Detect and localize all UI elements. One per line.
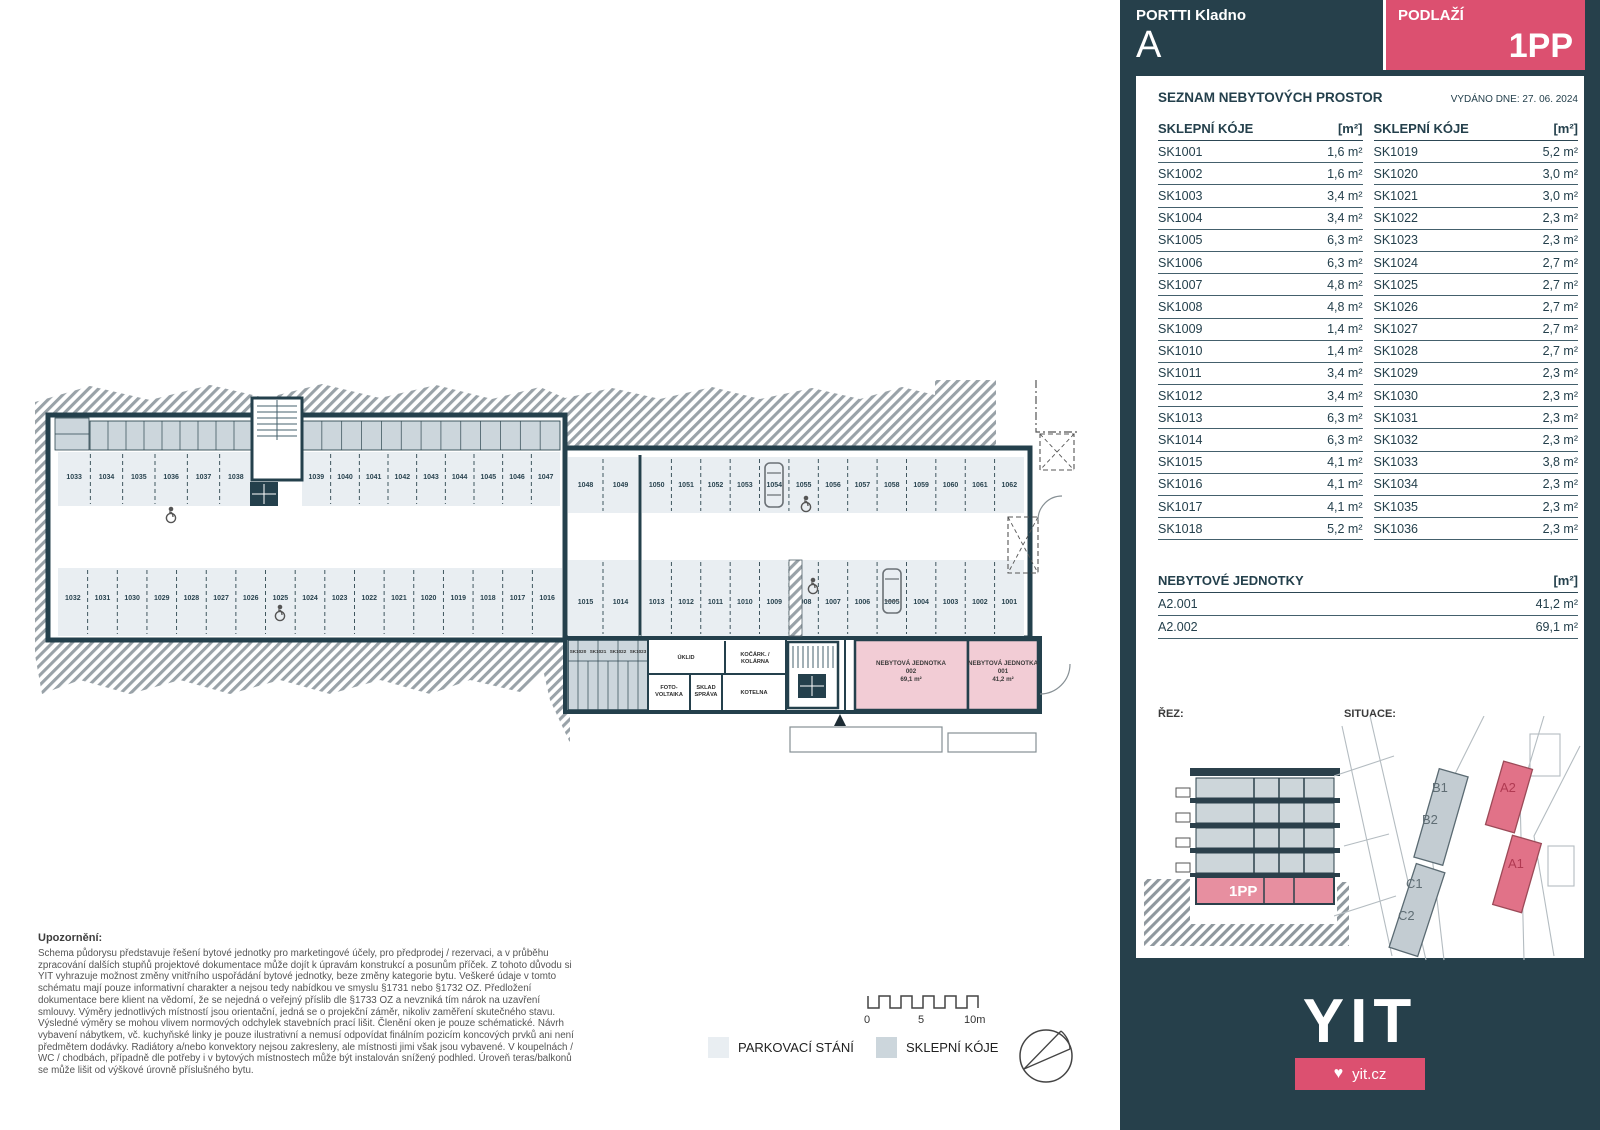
legend-storage: SKLEPNÍ KÓJE [876,1037,998,1058]
door-arc [1040,664,1070,694]
stall-number: 1038 [228,474,244,481]
canopy [790,727,942,752]
room-label: SKLADSPRÁVA [695,685,718,698]
sk-cell-label: SK1020 [570,649,587,654]
storage-row: SK10084,8 m² [1158,296,1363,318]
site-streets [1334,716,1580,960]
site-boundary [1036,380,1080,432]
stall-number: 1022 [362,595,378,602]
section-floors [1176,778,1340,877]
storage-row: SK10056,3 m² [1158,230,1363,252]
stall-number: 1041 [366,474,382,481]
storage-row: SK10113,4 m² [1158,363,1363,385]
storage-row: SK10136,3 m² [1158,407,1363,429]
section-label-rez: ŘEZ: [1158,708,1184,720]
stall-number: 1030 [124,595,140,602]
stall-number: 1032 [65,595,81,602]
column-header: SKLEPNÍ KÓJE[m²] [1158,118,1363,141]
stall-number: 1026 [243,595,259,602]
storage-row: SK10021,6 m² [1158,163,1363,185]
building-a1-footprint [1493,835,1542,912]
site-label-b2: B2 [1422,812,1438,827]
yit-cz-button[interactable]: ♥ yit.cz [1295,1058,1425,1090]
storage-swatch-icon [876,1037,897,1058]
nonresidential-units: NEBYTOVÉ JEDNOTKY[m²] A2.00141,2 m² A2.0… [1158,570,1578,639]
column-header: SKLEPNÍ KÓJE[m²] [1374,118,1579,141]
storage-row: SK10174,1 m² [1158,496,1363,518]
storage-row: SK10213,0 m² [1374,185,1579,207]
room-label: KOTELNA [740,690,767,696]
stall-number: 1046 [509,474,525,481]
project-title: PORTTI Kladno [1136,7,1246,24]
stall-number: 1042 [395,474,411,481]
stall-number: 1003 [943,599,959,606]
stall-number: 1033 [66,474,82,481]
scale-tick: 0 [864,1014,870,1026]
storage-row: SK10033,4 m² [1158,185,1363,207]
door-arc [1038,496,1062,520]
building-a2-footprint [1485,761,1532,833]
storage-row: SK10342,3 m² [1374,474,1579,496]
stall-number: 1027 [213,595,229,602]
storage-row: SK10322,3 m² [1374,429,1579,451]
issued-date: VYDÁNO DNE: 27. 06. 2024 [1451,94,1578,105]
stall-number: 1011 [708,599,723,606]
stall-number: 1053 [737,482,753,489]
section-drawing: 1PP [1144,724,1349,956]
page: 1033103410351036103710381039104010411042… [0,0,1600,1130]
stall-number: 1029 [154,595,170,602]
scale-tick: 10m [964,1014,985,1026]
disclaimer-body: Schema půdorysu představuje řešení bytov… [38,948,580,1077]
entrance-marker [834,714,846,726]
storage-band [90,421,252,450]
stall-number: 1019 [450,595,466,602]
storage-columns: SKLEPNÍ KÓJE[m²] SK10011,6 m²SK10021,6 m… [1158,118,1578,540]
parking-row-top-left-b: 103910401041104210431044104510461047 [302,452,560,506]
stall-number: 1036 [163,474,179,481]
stall-number: 1061 [972,482,988,489]
floor-badge-label: PODLAŽÍ [1398,7,1464,24]
stall-number: 1005 [884,599,900,606]
section-floor-tag: 1PP [1229,883,1257,900]
room-label: ÚKLID [677,654,694,661]
stall-number: 1015 [578,599,594,606]
storage-row: SK10352,3 m² [1374,496,1579,518]
legend-parking-label: PARKOVACÍ STÁNÍ [738,1040,854,1055]
canopy [948,733,1036,752]
parking-row-top-right-b: 1050105110521053105410551056105710581059… [642,457,1024,513]
floor-badge: PODLAŽÍ 1PP [1383,0,1585,70]
unit-row: A2.00141,2 m² [1158,593,1578,616]
unit-002 [855,640,968,710]
storage-row: SK10242,7 m² [1374,252,1579,274]
storage-row: SK10154,1 m² [1158,452,1363,474]
storage-row: SK10362,3 m² [1374,518,1579,540]
stall-number: 1057 [855,482,871,489]
parking-row-bottom-right-a: 10151014 [568,560,638,636]
storage-row: SK10282,7 m² [1374,341,1579,363]
storage-row: SK10203,0 m² [1374,163,1579,185]
storage-row: SK10292,3 m² [1374,363,1579,385]
stall-number: 1047 [538,474,554,481]
stall-number: 1018 [480,595,496,602]
sk-cell-label: SK1023 [630,649,647,654]
stall-number: 1049 [613,482,629,489]
stall-number: 1023 [332,595,348,602]
storage-row: SK10333,8 m² [1374,452,1579,474]
yit-cz-label: yit.cz [1352,1066,1386,1083]
parking-row-top-right-a: 10481049 [568,457,638,513]
stall-number: 1040 [337,474,353,481]
storage-row: SK10222,3 m² [1374,208,1579,230]
legend-storage-label: SKLEPNÍ KÓJE [906,1040,998,1055]
stall-number: 1039 [309,474,325,481]
section-basement [1196,877,1334,904]
floor-badge-value: 1PP [1509,27,1573,66]
stall-number: 1059 [913,482,929,489]
stall-number: 1048 [578,482,594,489]
stall-number: 1044 [452,474,468,481]
site-label-a1: A1 [1508,856,1524,871]
stall-number: 1004 [913,599,929,606]
stall-number: 1012 [678,599,694,606]
stall-number: 1043 [423,474,439,481]
storage-row: SK10066,3 m² [1158,252,1363,274]
unit-001 [968,640,1038,710]
storage-row: SK10091,4 m² [1158,319,1363,341]
stall-number: 1001 [1002,599,1018,606]
units-header: NEBYTOVÉ JEDNOTKY[m²] [1158,570,1578,593]
stall-number: 1062 [1002,482,1018,489]
list-panel: SEZNAM NEBYTOVÝCH PROSTOR VYDÁNO DNE: 27… [1136,76,1584,958]
dashed-structure [1040,434,1074,470]
stall-number: 1021 [391,595,407,602]
scale-tick: 5 [918,1014,924,1026]
yit-logo: YIT [1120,986,1600,1057]
storage-column-right: SKLEPNÍ KÓJE[m²] SK10195,2 m²SK10203,0 m… [1374,118,1579,540]
stall-number: 1024 [302,595,318,602]
stall-number: 1002 [972,599,988,606]
site-label-c1: C1 [1406,876,1423,891]
storage-row: SK10011,6 m² [1158,141,1363,163]
stall-number: 1056 [825,482,841,489]
stall-number: 1035 [131,474,147,481]
stall-number: 1025 [273,595,289,602]
storage-row: SK10146,3 m² [1158,429,1363,451]
stall-number: 1051 [678,482,694,489]
storage-row: SK10302,3 m² [1374,385,1579,407]
parking-swatch-icon [708,1037,729,1058]
storage-row: SK10043,4 m² [1158,208,1363,230]
legend-parking: PARKOVACÍ STÁNÍ [708,1037,854,1058]
storage-row: SK10123,4 m² [1158,385,1363,407]
storage-row: SK10272,7 m² [1374,319,1579,341]
storage-row: SK10312,3 m² [1374,407,1579,429]
parking-row-top-left-a: 103310341035103610371038 [58,452,252,506]
unit-row: A2.00269,1 m² [1158,616,1578,639]
storage-row: SK10101,4 m² [1158,341,1363,363]
stall-number: 1028 [184,595,200,602]
storage-band [302,421,560,450]
storage-row: SK10262,7 m² [1374,296,1579,318]
stall-number: 1006 [855,599,871,606]
storage-column-left: SKLEPNÍ KÓJE[m²] SK10011,6 m²SK10021,6 m… [1158,118,1363,540]
sk-cell-label: SK1022 [610,649,627,654]
stall-number: 1031 [95,595,111,602]
disclaimer-title: Upozornění: [38,932,580,944]
stall-number: 1045 [481,474,497,481]
stall-number: 1014 [613,599,629,606]
storage-row: SK10074,8 m² [1158,274,1363,296]
stall-number: 1009 [766,599,782,606]
storage-row: SK10164,1 m² [1158,474,1363,496]
building-letter: A [1136,24,1161,67]
heart-icon: ♥ [1334,1066,1344,1082]
stall-number: 1010 [737,599,753,606]
storage-row: SK10195,2 m² [1374,141,1579,163]
stair-core-right [788,642,838,708]
site-label-b1: B1 [1432,780,1448,795]
storage-row: SK10232,3 m² [1374,230,1579,252]
stall-number: 1050 [649,482,665,489]
storage-bands [90,421,560,450]
stall-number: 1037 [196,474,212,481]
panel-title: SEZNAM NEBYTOVÝCH PROSTOR [1158,90,1383,105]
stall-number: 1020 [421,595,437,602]
stall-number: 1017 [510,595,526,602]
sidebar: PORTTI Kladno A PODLAŽÍ 1PP SEZNAM NEBYT… [1120,0,1600,1130]
sk-cell-label: SK1021 [590,649,607,654]
stall-number: 1016 [539,595,555,602]
disclaimer: Upozornění: Schema půdorysu představuje … [38,932,580,1077]
site-label-c2: C2 [1398,908,1415,923]
stall-number: 1060 [943,482,959,489]
storage-row: SK10185,2 m² [1158,518,1363,540]
site-map: B1 B2 C1 C2 A2 A1 [1334,716,1582,964]
stall-number: 1034 [99,474,115,481]
storage-row: SK10252,7 m² [1374,274,1579,296]
pillar-hatch [789,560,802,636]
stall-number: 1055 [796,482,812,489]
stall-number: 1058 [884,482,900,489]
stall-number: 1013 [649,599,665,606]
parking-row-bottom-left: 1032103110301029102810271026102510241023… [58,568,562,636]
north-symbol [1020,1030,1072,1082]
stall-number: 1054 [766,482,782,489]
scale-bar: 0 5 10m [864,996,985,1026]
site-label-a2: A2 [1500,780,1516,795]
stall-number: 1007 [825,599,841,606]
stall-number: 1052 [708,482,724,489]
parking-row-bottom-right-b: 1013101210111010100910081007100610051004… [642,560,1024,636]
